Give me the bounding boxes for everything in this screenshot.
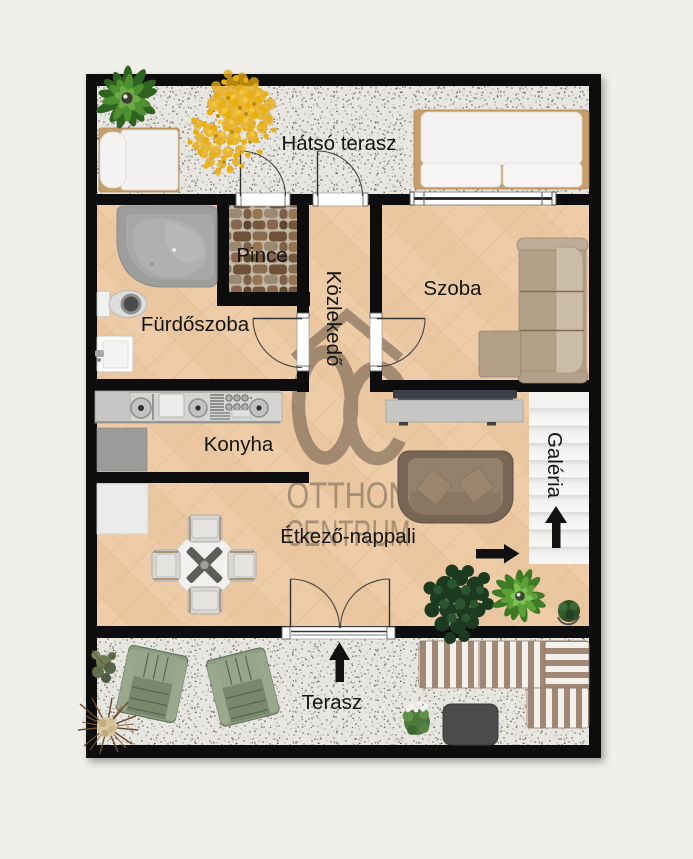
svg-text:Fürdőszoba: Fürdőszoba xyxy=(141,313,250,336)
svg-text:Közlekedő: Közlekedő xyxy=(322,271,345,367)
svg-text:Terasz: Terasz xyxy=(302,691,362,714)
svg-text:Étkező-nappali: Étkező-nappali xyxy=(280,525,416,548)
svg-text:Hátsó terasz: Hátsó terasz xyxy=(281,132,396,155)
svg-text:Konyha: Konyha xyxy=(204,433,274,456)
svg-text:Szoba: Szoba xyxy=(423,277,482,300)
svg-text:Pince: Pince xyxy=(236,244,287,267)
svg-text:Galéria: Galéria xyxy=(543,432,566,499)
